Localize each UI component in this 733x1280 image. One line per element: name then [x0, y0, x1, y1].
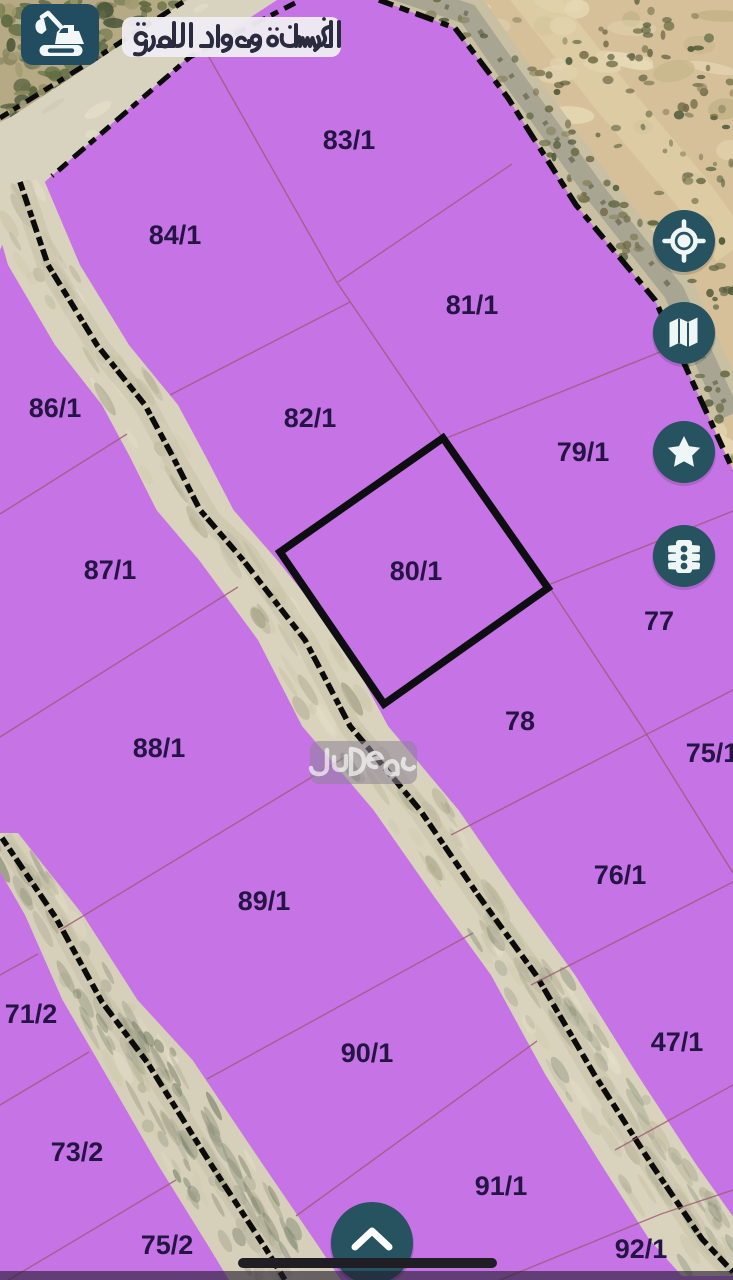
svg-text:89/1: 89/1 [238, 886, 291, 916]
svg-text:82/1: 82/1 [284, 403, 337, 433]
svg-text:77: 77 [644, 606, 674, 636]
svg-text:81/1: 81/1 [446, 290, 499, 320]
svg-text:87/1: 87/1 [84, 555, 137, 585]
svg-text:86/1: 86/1 [29, 393, 82, 423]
svg-text:83/1: 83/1 [323, 125, 376, 155]
svg-text:78: 78 [505, 706, 535, 736]
svg-text:75/1: 75/1 [686, 738, 733, 768]
svg-text:88/1: 88/1 [133, 733, 186, 763]
svg-text:71/2: 71/2 [5, 999, 58, 1029]
svg-text:84/1: 84/1 [149, 220, 202, 250]
svg-text:80/1: 80/1 [390, 556, 443, 586]
svg-text:79/1: 79/1 [557, 437, 610, 467]
svg-text:75/2: 75/2 [141, 1230, 194, 1260]
svg-text:90/1: 90/1 [341, 1038, 394, 1068]
svg-text:91/1: 91/1 [475, 1171, 528, 1201]
svg-text:92/1: 92/1 [615, 1234, 668, 1264]
svg-text:47/1: 47/1 [651, 1027, 704, 1057]
svg-text:73/2: 73/2 [51, 1137, 104, 1167]
svg-text:76/1: 76/1 [594, 860, 647, 890]
